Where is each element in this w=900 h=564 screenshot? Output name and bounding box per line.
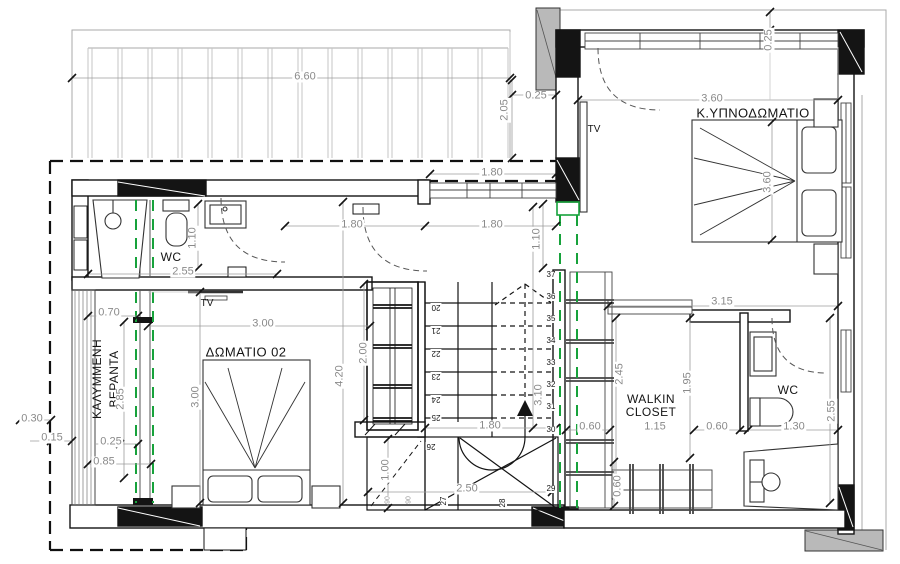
dim-bedroom02-width: 3.00 — [250, 319, 275, 330]
toilet-tank-right — [750, 398, 760, 426]
step-number: 30 — [546, 426, 557, 434]
tv-unit-hall — [580, 102, 587, 212]
pillow — [258, 476, 302, 502]
step-number: 34 — [546, 337, 557, 345]
dim-master-width: 3.60 — [699, 94, 724, 105]
nightstand — [312, 486, 340, 508]
toilet-tank-left — [163, 200, 189, 211]
dim-1-80-hall-left: 1.80 — [339, 220, 364, 231]
dim-veranda-width: 0.70 — [96, 308, 121, 319]
dim-wc-1-30: 1.30 — [781, 422, 806, 433]
pillow — [802, 190, 836, 236]
dim-0-25-top: 0.25 — [523, 91, 548, 102]
dim-walkin-3-15: 3.15 — [709, 297, 734, 308]
room-label-wc-left: WC — [161, 251, 182, 263]
step-number: 25 — [431, 413, 442, 421]
tv-label-hall: TV — [588, 125, 601, 135]
nightstand — [814, 244, 838, 274]
door-arc-bedroom02 — [363, 207, 427, 271]
dim-4-20: 4.20 — [335, 363, 346, 388]
room-label-veranda-1: ΚΑΛΥΜΜΕΝΗ — [91, 339, 103, 419]
shower-drain — [762, 473, 780, 491]
floor-plan-drawing — [0, 0, 900, 564]
toilet-left — [166, 213, 187, 246]
nightstand — [172, 486, 200, 508]
dim-0-30: 0.30 — [19, 414, 44, 425]
stair-closet — [367, 282, 425, 510]
room-label-bedroom-02: ΔΩΜΑΤΙΟ 02 — [206, 346, 287, 359]
riser-mark: 90 — [385, 496, 392, 504]
step-number: 22 — [431, 349, 442, 357]
step-number: 28 — [499, 498, 507, 509]
dim-walkin-1-15: 1.15 — [642, 422, 667, 433]
tv-label-bedroom: TV — [201, 299, 214, 309]
dim-closet-2-00: 2.00 — [359, 340, 370, 365]
room-label-walkin-1: WALKIN — [627, 393, 675, 405]
dim-2-05: 2.05 — [500, 97, 511, 122]
dim-stair-3-10: 3.10 — [534, 382, 545, 407]
step-number: 20 — [431, 303, 442, 311]
riser-mark: 90 — [406, 496, 413, 504]
step-number: 26 — [426, 442, 437, 450]
dim-wc-width: 2.55 — [170, 267, 195, 278]
step-number: 37 — [546, 271, 557, 279]
dim-0-25-veranda: 0.25 — [98, 437, 123, 448]
step-number: 32 — [546, 381, 557, 389]
dim-stair-1-80: 1.80 — [477, 421, 502, 432]
dim-stair-2-50: 2.50 — [454, 484, 479, 495]
dim-bedroom02-depth: 3.00 — [191, 384, 202, 409]
dim-master-depth: 3.60 — [763, 169, 774, 194]
step-number: 24 — [431, 395, 442, 403]
dim-0-15: 0.15 — [39, 433, 64, 444]
dim-0-60-c: 0.60 — [613, 473, 624, 498]
dim-0-85: 0.85 — [91, 457, 116, 468]
step-number: 21 — [431, 326, 442, 334]
shower-drain — [105, 213, 121, 229]
room-label-wc-right: WC — [778, 384, 799, 396]
dim-1-80-shelf: 1.80 — [479, 168, 504, 179]
pillow — [208, 476, 252, 502]
dim-1-10-wc-left: 1.10 — [188, 225, 199, 250]
dimension-lines — [20, 12, 838, 508]
step-number: 29 — [546, 485, 557, 493]
step-number: 35 — [546, 315, 557, 323]
dim-pergola-width: 6.60 — [292, 72, 317, 83]
pillow — [802, 127, 836, 173]
door-arc-master — [598, 48, 660, 110]
dim-1-10-hall: 1.10 — [532, 226, 543, 251]
dim-0-25-rot: 0.25 — [764, 27, 775, 52]
dim-1-80-hall-right: 1.80 — [479, 220, 504, 231]
floor-plan: Κ.ΥΠΝΟΔΩΜΑΤΙΟ ΔΩΜΑΤΙΟ 02 WALKIN CLOSET W… — [0, 0, 900, 564]
step-number: 36 — [546, 293, 557, 301]
dim-walkin-1-95: 1.95 — [683, 370, 694, 395]
door-arc-wc-right — [772, 318, 827, 373]
dim-wc-2-55: 2.55 — [827, 398, 838, 423]
dim-0-60-b: 0.60 — [704, 422, 729, 433]
step-number: 23 — [431, 372, 442, 380]
room-label-master-bedroom: Κ.ΥΠΝΟΔΩΜΑΤΙΟ — [696, 107, 809, 120]
step-number: 33 — [546, 359, 557, 367]
dim-0-60-rail: 0.60 — [577, 422, 602, 433]
stair-direction-arrow — [517, 400, 533, 416]
step-number: 31 — [546, 403, 557, 411]
room-label-walkin-2: CLOSET — [626, 406, 676, 418]
dim-1-00: 1.00 — [381, 457, 392, 482]
step-number: 27 — [440, 496, 448, 507]
shower-left — [93, 200, 147, 278]
dim-window-2-85: 2.85 — [116, 386, 127, 411]
dim-walkin-2-45: 2.45 — [615, 361, 626, 386]
